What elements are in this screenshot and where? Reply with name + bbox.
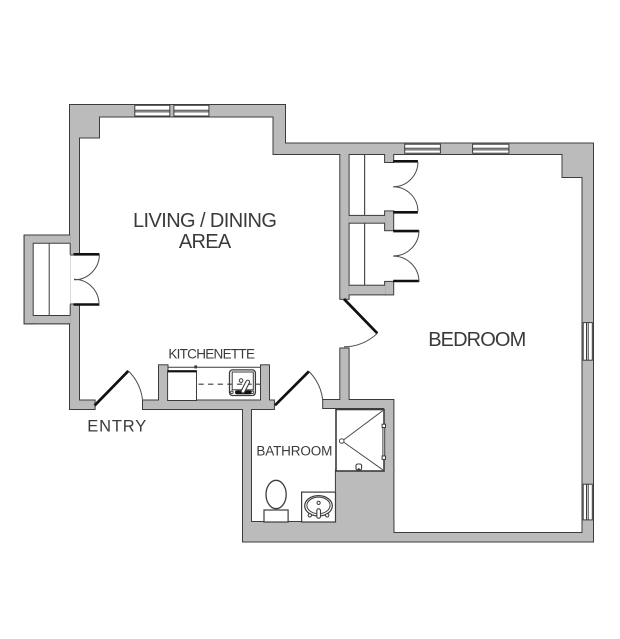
- svg-text:LIVING / DINING: LIVING / DINING: [133, 210, 276, 232]
- svg-text:AREA: AREA: [179, 231, 232, 253]
- svg-text:KITCHENETTE: KITCHENETTE: [168, 347, 255, 362]
- svg-text:ENTRY: ENTRY: [87, 417, 147, 435]
- svg-text:BATHROOM: BATHROOM: [256, 443, 332, 458]
- svg-text:BEDROOM: BEDROOM: [428, 329, 525, 351]
